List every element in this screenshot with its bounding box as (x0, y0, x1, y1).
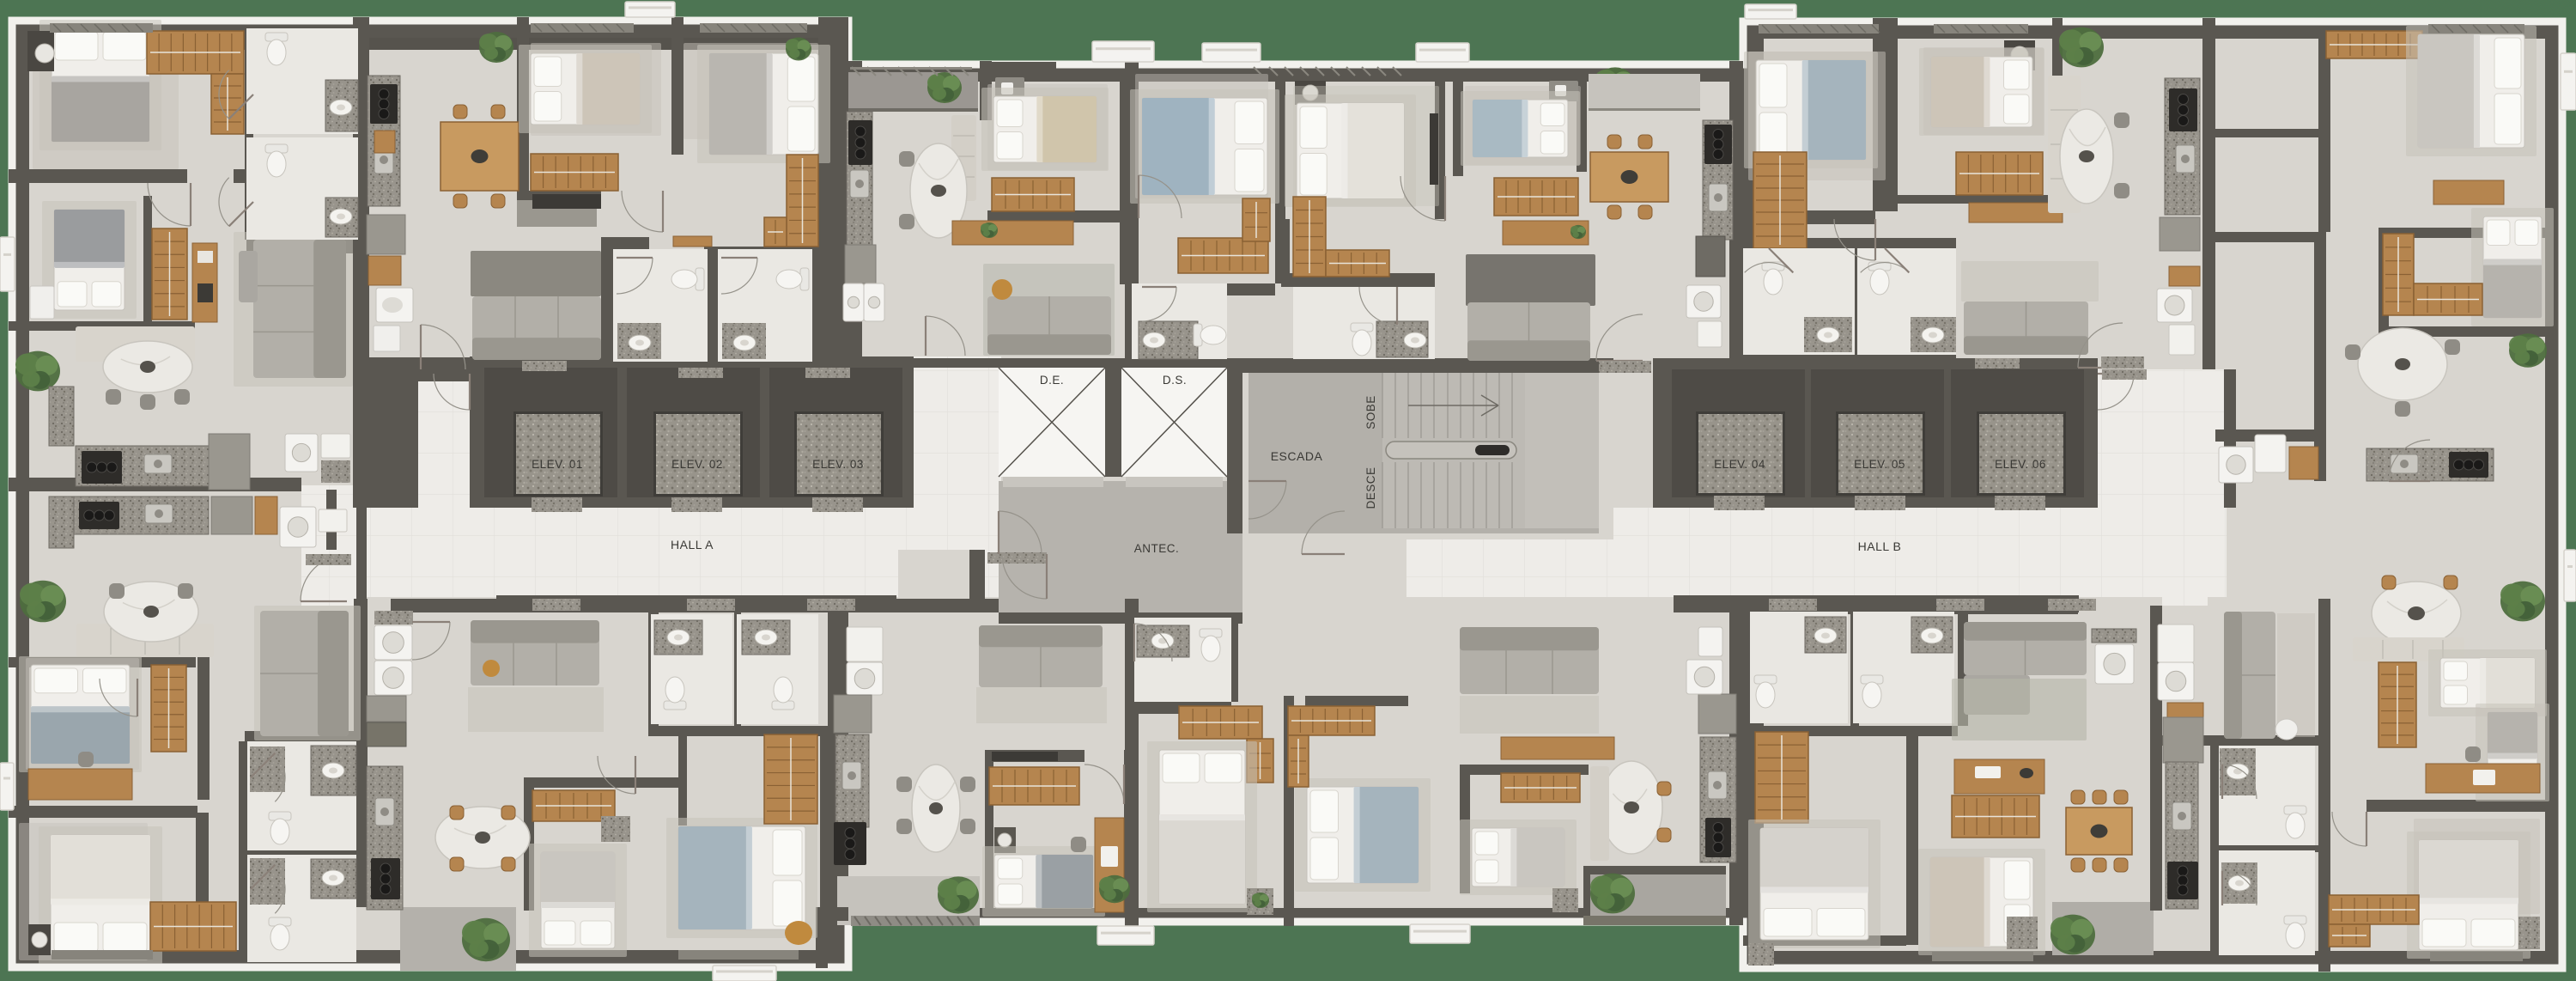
svg-text:HALL B: HALL B (1858, 539, 1902, 553)
svg-text:ANTEC.: ANTEC. (1134, 542, 1180, 555)
svg-text:ESCADA: ESCADA (1271, 449, 1323, 463)
svg-text:D.S.: D.S. (1163, 374, 1187, 387)
svg-text:D.E.: D.E. (1040, 374, 1064, 387)
svg-text:ELEV. 06: ELEV. 06 (1995, 458, 2046, 471)
svg-text:DESCE: DESCE (1364, 466, 1377, 509)
svg-text:ELEV. 05: ELEV. 05 (1854, 458, 1905, 471)
svg-text:ELEV. 02: ELEV. 02 (671, 458, 723, 471)
svg-text:ELEV. 01: ELEV. 01 (532, 458, 583, 471)
svg-text:ELEV. 04: ELEV. 04 (1714, 458, 1765, 471)
svg-text:ELEV. 03: ELEV. 03 (812, 458, 864, 471)
svg-text:SOBE: SOBE (1364, 395, 1377, 430)
svg-text:HALL A: HALL A (671, 538, 714, 551)
